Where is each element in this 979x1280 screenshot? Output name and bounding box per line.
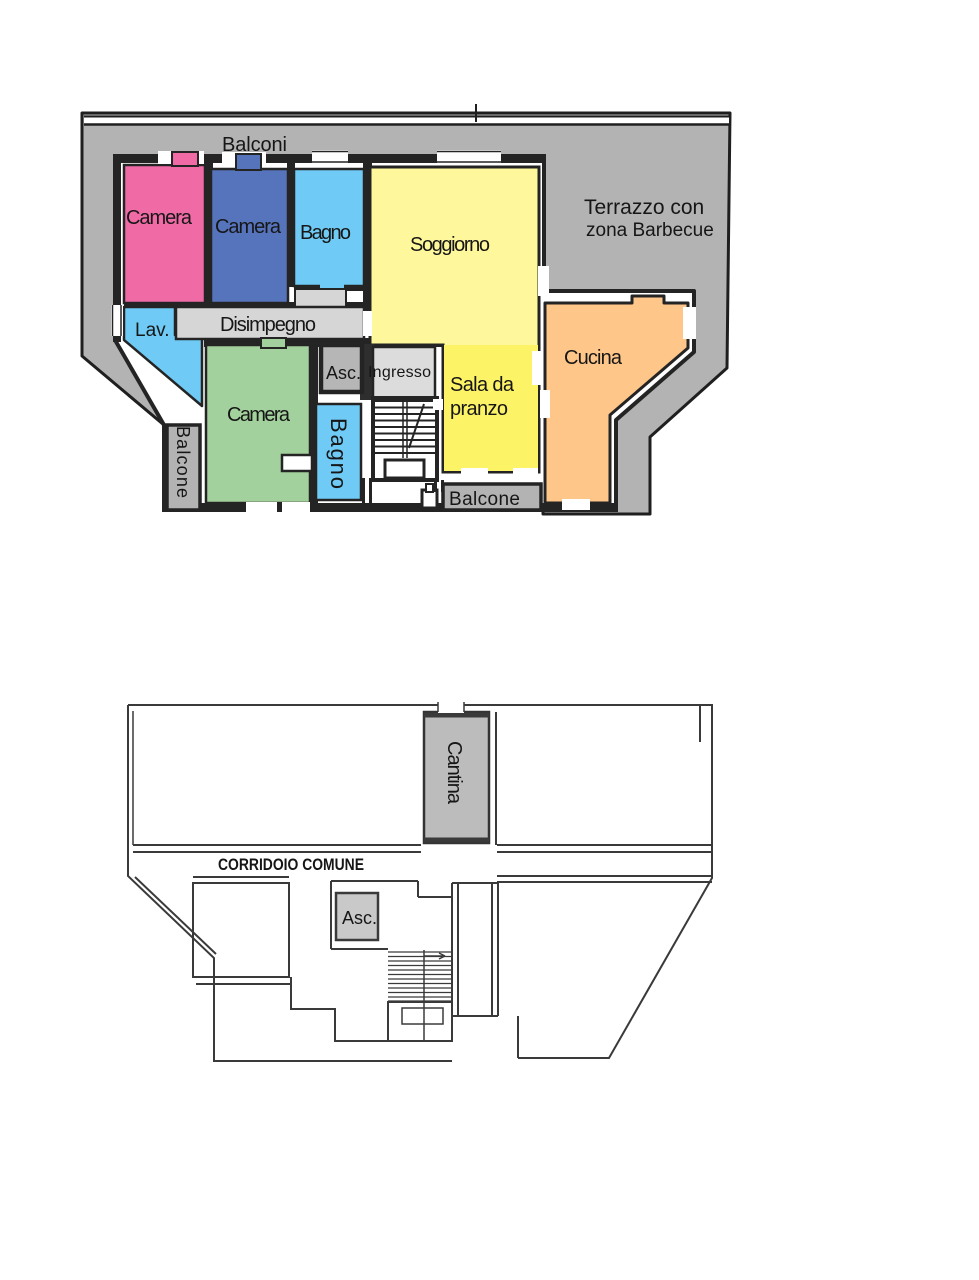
svg-text:Sala da: Sala da xyxy=(450,374,515,396)
svg-text:Disimpegno: Disimpegno xyxy=(220,314,316,336)
svg-text:Balconi: Balconi xyxy=(222,134,287,156)
svg-text:Asc.: Asc. xyxy=(342,908,377,928)
svg-text:zona Barbecue: zona Barbecue xyxy=(586,220,714,241)
svg-text:Soggiorno: Soggiorno xyxy=(410,234,490,256)
svg-text:pranzo: pranzo xyxy=(450,398,508,420)
svg-text:Balcone: Balcone xyxy=(173,426,193,498)
svg-text:Lav.: Lav. xyxy=(135,320,170,341)
svg-text:CORRIDOIO COMUNE: CORRIDOIO COMUNE xyxy=(218,855,364,874)
svg-text:Cucina: Cucina xyxy=(564,347,623,369)
svg-text:Bagno: Bagno xyxy=(300,222,351,244)
svg-text:Camera: Camera xyxy=(215,216,282,238)
svg-text:Balcone: Balcone xyxy=(449,489,520,510)
svg-text:Ingresso: Ingresso xyxy=(368,364,431,381)
svg-text:Terrazzo con: Terrazzo con xyxy=(584,196,704,219)
svg-text:Camera: Camera xyxy=(126,207,193,229)
svg-text:Camera: Camera xyxy=(227,404,291,426)
svg-text:Bagno: Bagno xyxy=(326,418,351,489)
svg-text:Cantina: Cantina xyxy=(443,741,465,805)
svg-text:Asc.: Asc. xyxy=(326,363,361,383)
